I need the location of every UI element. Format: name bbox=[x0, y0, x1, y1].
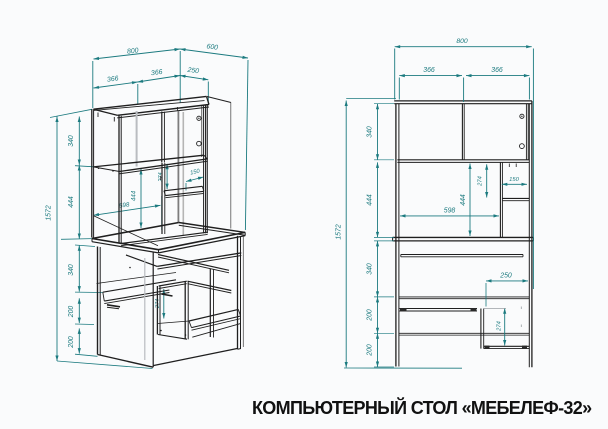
svg-text:444: 444 bbox=[366, 194, 373, 206]
svg-text:366: 366 bbox=[107, 75, 119, 83]
svg-text:444: 444 bbox=[460, 194, 467, 206]
svg-text:340: 340 bbox=[68, 264, 75, 276]
svg-text:150: 150 bbox=[509, 177, 519, 183]
svg-text:800: 800 bbox=[456, 38, 468, 45]
svg-text:1572: 1572 bbox=[46, 205, 53, 220]
svg-text:200: 200 bbox=[68, 306, 75, 319]
svg-text:340: 340 bbox=[366, 263, 373, 275]
svg-text:366: 366 bbox=[423, 67, 435, 74]
svg-text:444: 444 bbox=[68, 196, 75, 208]
svg-text:150: 150 bbox=[190, 168, 202, 176]
svg-text:340: 340 bbox=[366, 126, 373, 138]
svg-text:600: 600 bbox=[206, 43, 218, 51]
svg-text:800: 800 bbox=[127, 47, 139, 55]
svg-text:366: 366 bbox=[491, 67, 503, 74]
svg-text:1572: 1572 bbox=[336, 224, 343, 239]
svg-text:200: 200 bbox=[366, 309, 373, 322]
svg-text:250: 250 bbox=[499, 273, 512, 280]
svg-text:598: 598 bbox=[444, 208, 456, 215]
svg-text:250: 250 bbox=[186, 67, 200, 76]
svg-text:366: 366 bbox=[151, 69, 163, 77]
svg-text:200: 200 bbox=[68, 336, 75, 349]
svg-text:340: 340 bbox=[68, 135, 75, 147]
svg-text:200: 200 bbox=[366, 344, 373, 357]
svg-text:598: 598 bbox=[119, 201, 131, 209]
svg-text:274: 274 bbox=[497, 321, 503, 332]
svg-text:444: 444 bbox=[131, 190, 138, 201]
svg-text:274: 274 bbox=[478, 176, 484, 187]
